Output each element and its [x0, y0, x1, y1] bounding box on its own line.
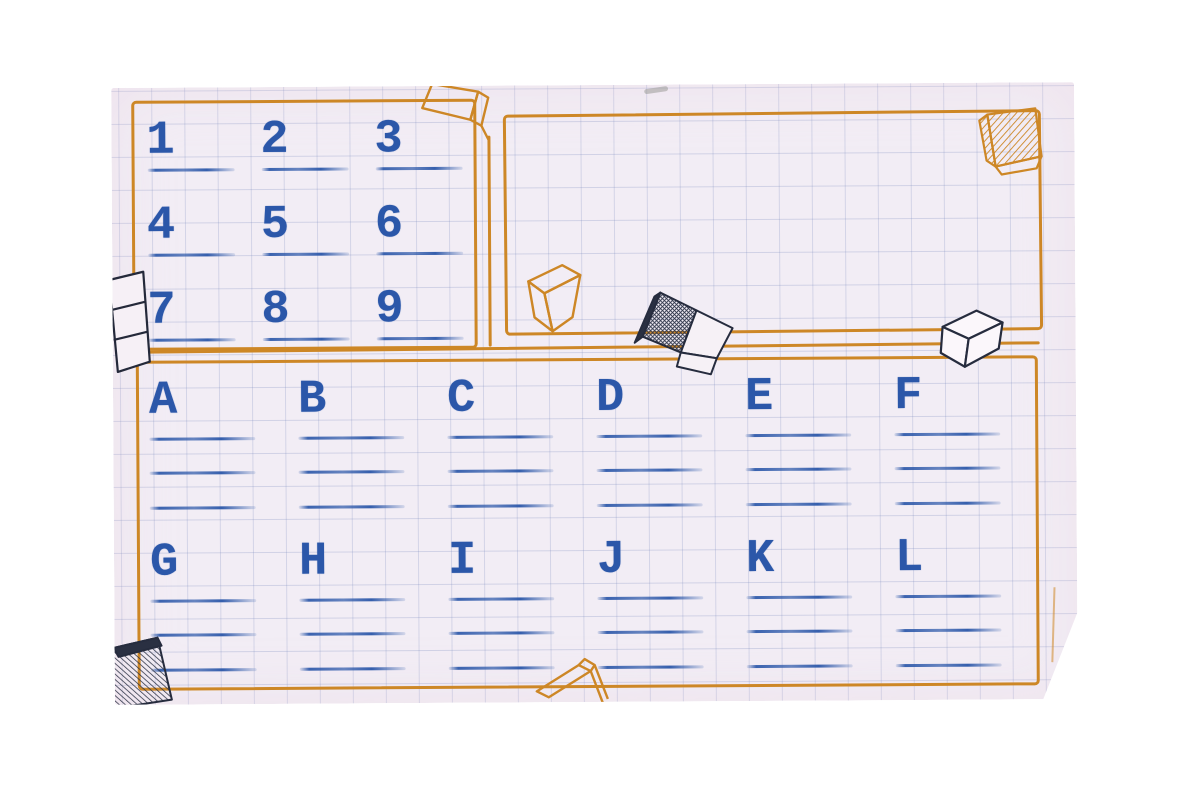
number-cell-7: 7	[147, 285, 262, 371]
letter-answer-line[interactable]	[298, 470, 404, 474]
number-label: 7	[147, 287, 261, 335]
letter-answer-line[interactable]	[447, 469, 553, 473]
letter-label: E	[745, 373, 894, 421]
letter-label: K	[746, 535, 895, 583]
number-label: 8	[261, 286, 375, 334]
worksheet-card: 1 2 3 4 5	[111, 82, 1078, 705]
letter-answer-line[interactable]	[150, 506, 256, 510]
number-cell-6: 6	[375, 199, 490, 285]
letter-cell-j: J	[597, 534, 747, 697]
divider-double-line	[487, 136, 491, 347]
number-answer-line[interactable]	[376, 167, 463, 171]
letter-answer-line[interactable]	[299, 505, 405, 509]
number-answer-line[interactable]	[262, 252, 349, 256]
letter-answer-line[interactable]	[597, 596, 703, 600]
letter-cell-h: H	[299, 536, 449, 699]
letter-answer-line[interactable]	[745, 467, 851, 471]
letter-cell-b: B	[298, 374, 448, 537]
letter-answer-line[interactable]	[298, 436, 404, 440]
numbers-grid: 1 2 3 4 5	[134, 102, 474, 348]
letter-answer-line[interactable]	[596, 468, 702, 472]
number-label: 6	[375, 201, 489, 249]
number-answer-line[interactable]	[377, 337, 464, 341]
number-cell-5: 5	[261, 199, 376, 285]
letter-answer-line[interactable]	[895, 629, 1001, 633]
letter-label: I	[448, 537, 597, 585]
letter-answer-line[interactable]	[746, 595, 852, 599]
number-answer-line[interactable]	[148, 168, 235, 172]
number-cell-9: 9	[375, 284, 490, 370]
letter-answer-line[interactable]	[149, 437, 255, 441]
letter-answer-line[interactable]	[746, 502, 852, 506]
number-answer-line[interactable]	[376, 252, 463, 256]
letter-cell-a: A	[149, 375, 299, 538]
letter-answer-line[interactable]	[449, 666, 555, 670]
numbers-panel: 1 2 3 4 5	[131, 99, 478, 351]
letter-answer-line[interactable]	[300, 667, 406, 671]
letter-answer-line[interactable]	[151, 668, 257, 672]
letter-cell-c: C	[447, 373, 597, 536]
scan-smudge	[644, 86, 668, 94]
letter-cell-d: D	[596, 372, 746, 535]
number-cell-1: 1	[146, 115, 261, 201]
letter-label: L	[895, 534, 1044, 582]
letter-label: G	[150, 539, 299, 587]
number-label: 4	[147, 202, 261, 250]
letter-answer-line[interactable]	[597, 630, 703, 634]
letter-answer-line[interactable]	[747, 664, 853, 668]
number-cell-3: 3	[374, 114, 489, 200]
letter-label: J	[597, 536, 746, 584]
letter-answer-line[interactable]	[745, 433, 851, 437]
letter-answer-line[interactable]	[896, 664, 1002, 668]
number-answer-line[interactable]	[262, 167, 349, 171]
letter-cell-k: K	[746, 533, 896, 696]
letter-cell-g: G	[150, 537, 300, 700]
right-edge-faint-line	[1051, 587, 1055, 662]
number-label: 2	[260, 116, 374, 164]
letter-label: C	[447, 375, 596, 423]
number-cell-4: 4	[147, 200, 262, 286]
letter-cell-e: E	[745, 371, 895, 534]
number-label: 1	[146, 117, 260, 165]
letter-answer-line[interactable]	[299, 632, 405, 636]
letter-label: H	[299, 538, 448, 586]
letter-label: F	[894, 372, 1043, 420]
letter-answer-line[interactable]	[299, 598, 405, 602]
letter-answer-line[interactable]	[895, 502, 1001, 506]
letter-answer-line[interactable]	[746, 629, 852, 633]
number-cell-8: 8	[261, 284, 376, 370]
letters-panel: A B C D	[136, 355, 1040, 691]
letter-label: A	[149, 377, 298, 425]
letter-answer-line[interactable]	[447, 435, 553, 439]
number-answer-line[interactable]	[148, 253, 235, 257]
number-label: 3	[374, 116, 488, 164]
number-cell-2: 2	[260, 114, 375, 200]
letter-label: B	[298, 376, 447, 424]
letters-grid: A B C D	[139, 358, 1037, 687]
letter-cell-i: I	[448, 535, 598, 698]
letter-answer-line[interactable]	[895, 595, 1001, 599]
letter-answer-line[interactable]	[448, 504, 554, 508]
number-answer-line[interactable]	[149, 338, 236, 342]
empty-notes-panel	[503, 109, 1043, 336]
letter-answer-line[interactable]	[894, 433, 1000, 437]
letter-answer-line[interactable]	[149, 471, 255, 475]
number-answer-line[interactable]	[263, 337, 350, 341]
letter-answer-line[interactable]	[597, 503, 703, 507]
number-label: 9	[375, 286, 489, 334]
letter-cell-l: L	[895, 532, 1045, 695]
letter-answer-line[interactable]	[448, 631, 554, 635]
letter-answer-line[interactable]	[150, 599, 256, 603]
number-label: 5	[261, 201, 375, 249]
letter-answer-line[interactable]	[448, 597, 554, 601]
scan-background: 1 2 3 4 5	[0, 0, 1180, 787]
letter-answer-line[interactable]	[598, 665, 704, 669]
letter-answer-line[interactable]	[596, 434, 702, 438]
letter-cell-f: F	[894, 370, 1044, 533]
letter-label: D	[596, 374, 745, 422]
letter-answer-line[interactable]	[150, 633, 256, 637]
letter-answer-line[interactable]	[894, 467, 1000, 471]
